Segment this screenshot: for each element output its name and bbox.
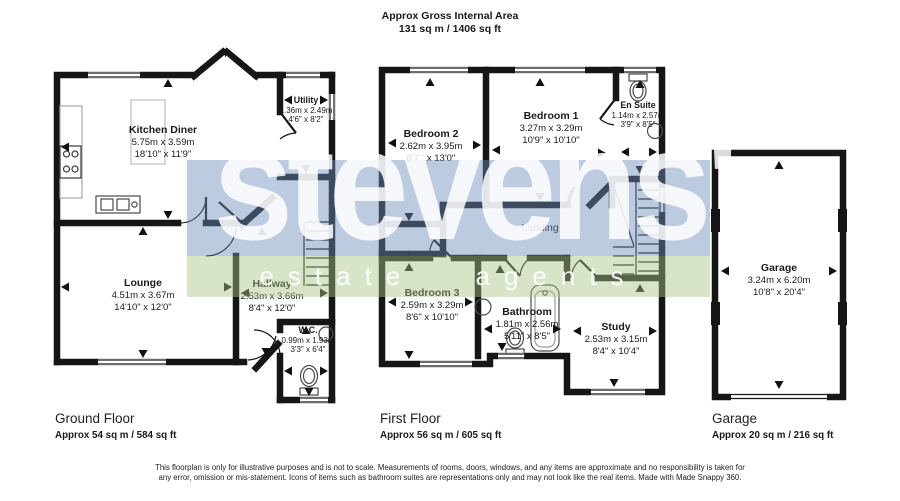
floorplan-page: Approx Gross Internal Area 131 sq m / 14… bbox=[0, 0, 900, 501]
room-label-study: Study 2.53m x 3.15m 8'4" x 10'4" bbox=[585, 321, 648, 358]
disclaimer-text: This floorplan is only for illustrative … bbox=[150, 463, 750, 483]
room-label-en-suite: En Suite 1.14m x 2.57m 3'9" x 8'5" bbox=[612, 100, 665, 130]
room-label-bathroom: Bathroom 1.81m x 2.56m 5'11" x 8'5" bbox=[496, 306, 559, 343]
room-label-bedroom-3: Bedroom 3 2.59m x 3.29m 8'6" x 10'10" bbox=[401, 287, 464, 324]
room-label-kitchen-diner: Kitchen Diner 5.75m x 3.59m 18'10" x 11'… bbox=[129, 124, 197, 161]
first-floor-caption: First Floor Approx 56 sq m / 605 sq ft bbox=[380, 411, 501, 441]
garage-door bbox=[731, 394, 827, 401]
room-label-landing: Landing bbox=[521, 222, 558, 235]
room-label-bedroom-2: Bedroom 2 2.62m x 3.95m 8'7"' x 13'0" bbox=[400, 128, 463, 165]
kitchen-counter bbox=[60, 106, 82, 198]
ground-floor-caption: Ground Floor Approx 54 sq m / 584 sq ft bbox=[55, 411, 176, 441]
room-label-bedroom-1: Bedroom 1 3.27m x 3.29m 10'9" x 10'10" bbox=[520, 110, 583, 147]
room-label-utility: Utility 1.36m x 2.49m 4'6" x 8'2" bbox=[280, 95, 333, 125]
room-label-lounge: Lounge 4.51m x 3.67m 14'10" x 12'0" bbox=[112, 277, 175, 314]
kitchen-sink-icon bbox=[96, 196, 140, 213]
room-label-hallway: Hallway 2.53m x 3.66m 8'4" x 12'0" bbox=[241, 278, 304, 315]
hob-icon bbox=[60, 146, 81, 178]
garage-caption: Garage Approx 20 sq m / 216 sq ft bbox=[712, 411, 833, 441]
room-label-garage: Garage 3.24m x 6.20m 10'8" x 20'4" bbox=[748, 262, 811, 299]
room-label-wc: W.C. 0.99m x 1.93m 3'3" x 6'4" bbox=[282, 325, 335, 355]
